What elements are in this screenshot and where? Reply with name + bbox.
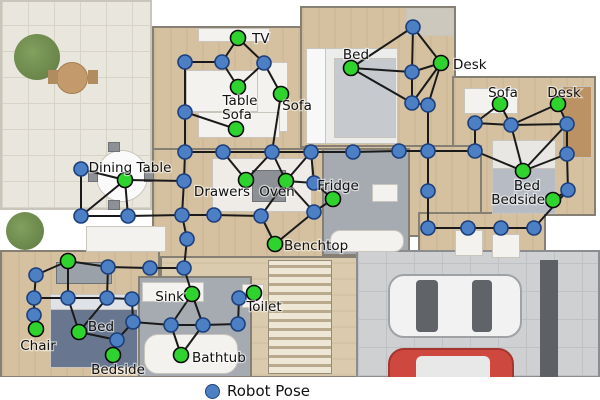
robot-pose-node	[254, 209, 268, 223]
pose-graph-overlay: TVTableSofaSofaDining TableDrawersOvenFr…	[0, 0, 600, 400]
landmark-label: Sink	[155, 289, 184, 305]
graph-edge	[272, 94, 281, 152]
landmark-label: Sofa	[488, 85, 518, 101]
robot-pose-node	[421, 221, 435, 235]
robot-pose-node	[265, 145, 279, 159]
robot-pose-node	[421, 98, 435, 112]
robot-pose-node	[207, 208, 221, 222]
landmark-node	[516, 164, 531, 179]
robot-pose-node	[307, 205, 321, 219]
robot-pose-node	[215, 55, 229, 69]
robot-pose-node	[560, 117, 574, 131]
graph-edge	[351, 68, 412, 72]
landmark-label: Chair	[20, 338, 56, 354]
landmark-label: Oven	[259, 184, 294, 200]
robot-pose-node	[421, 184, 435, 198]
robot-pose-node	[143, 261, 157, 275]
landmark-label: Bed	[88, 319, 114, 335]
landmark-label: Benchtop	[284, 238, 348, 254]
robot-pose-node	[175, 208, 189, 222]
landmark-label: Bed	[343, 47, 369, 63]
robot-pose-node	[164, 318, 178, 332]
graph-edge	[81, 180, 125, 216]
robot-pose-node	[406, 20, 420, 34]
landmark-label: Bedside	[491, 192, 545, 208]
robot-pose-node	[257, 56, 271, 70]
robot-pose-node	[61, 291, 75, 305]
landmark-label: Bedside	[91, 362, 145, 378]
robot-pose-node	[405, 65, 419, 79]
landmark-label: Drawers	[194, 184, 250, 200]
robot-pose-node	[126, 315, 140, 329]
landmark-label: Bathtub	[192, 350, 246, 366]
graph-edge	[511, 124, 567, 125]
landmark-node	[174, 348, 189, 363]
robot-pose-node	[392, 144, 406, 158]
robot-pose-node	[461, 221, 475, 235]
landmark-label: Sofa	[282, 98, 312, 114]
landmark-label: Desk	[453, 57, 487, 73]
landmark-node	[61, 254, 76, 269]
landmark-label: Dining Table	[89, 160, 172, 176]
robot-pose-node	[121, 209, 135, 223]
robot-pose-node	[196, 318, 210, 332]
floorplan-canvas: TVTableSofaSofaDining TableDrawersOvenFr…	[0, 0, 600, 400]
landmark-node	[434, 56, 449, 71]
robot-pose-node	[177, 174, 191, 188]
robot-pose-node	[178, 55, 192, 69]
robot-pose-legend-marker	[205, 384, 220, 399]
landmark-label: Desk	[547, 85, 581, 101]
landmark-label: Toilet	[245, 299, 281, 315]
robot-pose-node	[27, 308, 41, 322]
robot-pose-node	[74, 162, 88, 176]
graph-edge	[125, 180, 184, 181]
robot-pose-node	[561, 183, 575, 197]
robot-pose-node	[216, 145, 230, 159]
landmark-label: Sofa	[222, 107, 252, 123]
robot-pose-node	[231, 317, 245, 331]
robot-pose-node	[504, 118, 518, 132]
robot-pose-node	[101, 260, 115, 274]
robot-pose-node	[110, 333, 124, 347]
robot-pose-node	[74, 209, 88, 223]
graph-edge	[351, 68, 412, 103]
robot-pose-node	[125, 292, 139, 306]
robot-pose-node	[346, 145, 360, 159]
legend: Robot Pose	[205, 382, 310, 400]
landmark-node	[106, 348, 121, 363]
robot-pose-node	[178, 145, 192, 159]
landmark-label: Fridge	[317, 178, 359, 194]
robot-pose-node	[29, 268, 43, 282]
landmark-node	[268, 237, 283, 252]
graph-edge	[523, 124, 567, 171]
robot-pose-node	[560, 147, 574, 161]
robot-pose-node	[177, 261, 191, 275]
robot-pose-node	[468, 116, 482, 130]
robot-pose-node	[100, 291, 114, 305]
robot-pose-node	[468, 144, 482, 158]
robot-pose-node	[232, 291, 246, 305]
robot-pose-node	[304, 145, 318, 159]
landmark-node	[72, 325, 87, 340]
landmark-node	[29, 322, 44, 337]
landmark-label: TV	[251, 31, 270, 47]
robot-pose-node	[494, 221, 508, 235]
robot-pose-node	[27, 291, 41, 305]
robot-pose-node	[421, 144, 435, 158]
landmark-node	[185, 287, 200, 302]
landmark-node	[231, 31, 246, 46]
legend-label: Robot Pose	[227, 382, 310, 400]
robot-pose-node	[527, 221, 541, 235]
robot-pose-node	[178, 105, 192, 119]
robot-pose-node	[405, 96, 419, 110]
landmark-node	[546, 193, 561, 208]
robot-pose-node	[180, 232, 194, 246]
graph-edge	[128, 215, 182, 216]
landmark-node	[229, 122, 244, 137]
